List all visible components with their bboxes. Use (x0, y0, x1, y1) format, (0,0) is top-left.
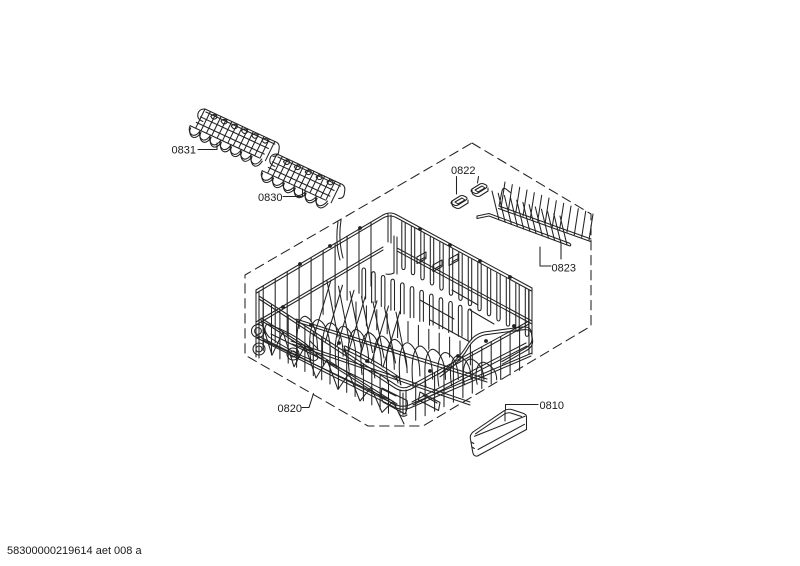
svg-text:0831: 0831 (172, 145, 196, 157)
svg-text:0810: 0810 (540, 400, 564, 412)
svg-text:0830: 0830 (258, 192, 282, 204)
svg-text:0820: 0820 (278, 403, 302, 415)
svg-text:58300000219614 aet 008 a: 58300000219614 aet 008 a (7, 545, 142, 557)
svg-text:0822: 0822 (451, 165, 475, 177)
svg-text:0823: 0823 (552, 263, 576, 275)
